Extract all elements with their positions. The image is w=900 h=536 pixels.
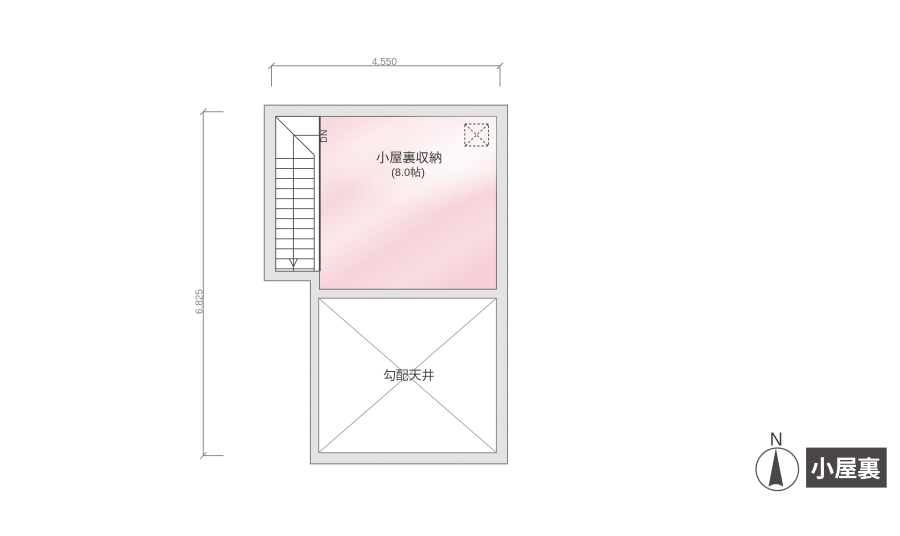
svg-text:N: N [770, 430, 783, 450]
svg-text:DN: DN [319, 129, 329, 143]
svg-text:(8.0: (8.0 [391, 167, 410, 179]
svg-text:4,550: 4,550 [372, 57, 397, 68]
svg-text:): ) [421, 167, 425, 179]
svg-text:6,825: 6,825 [194, 289, 205, 314]
